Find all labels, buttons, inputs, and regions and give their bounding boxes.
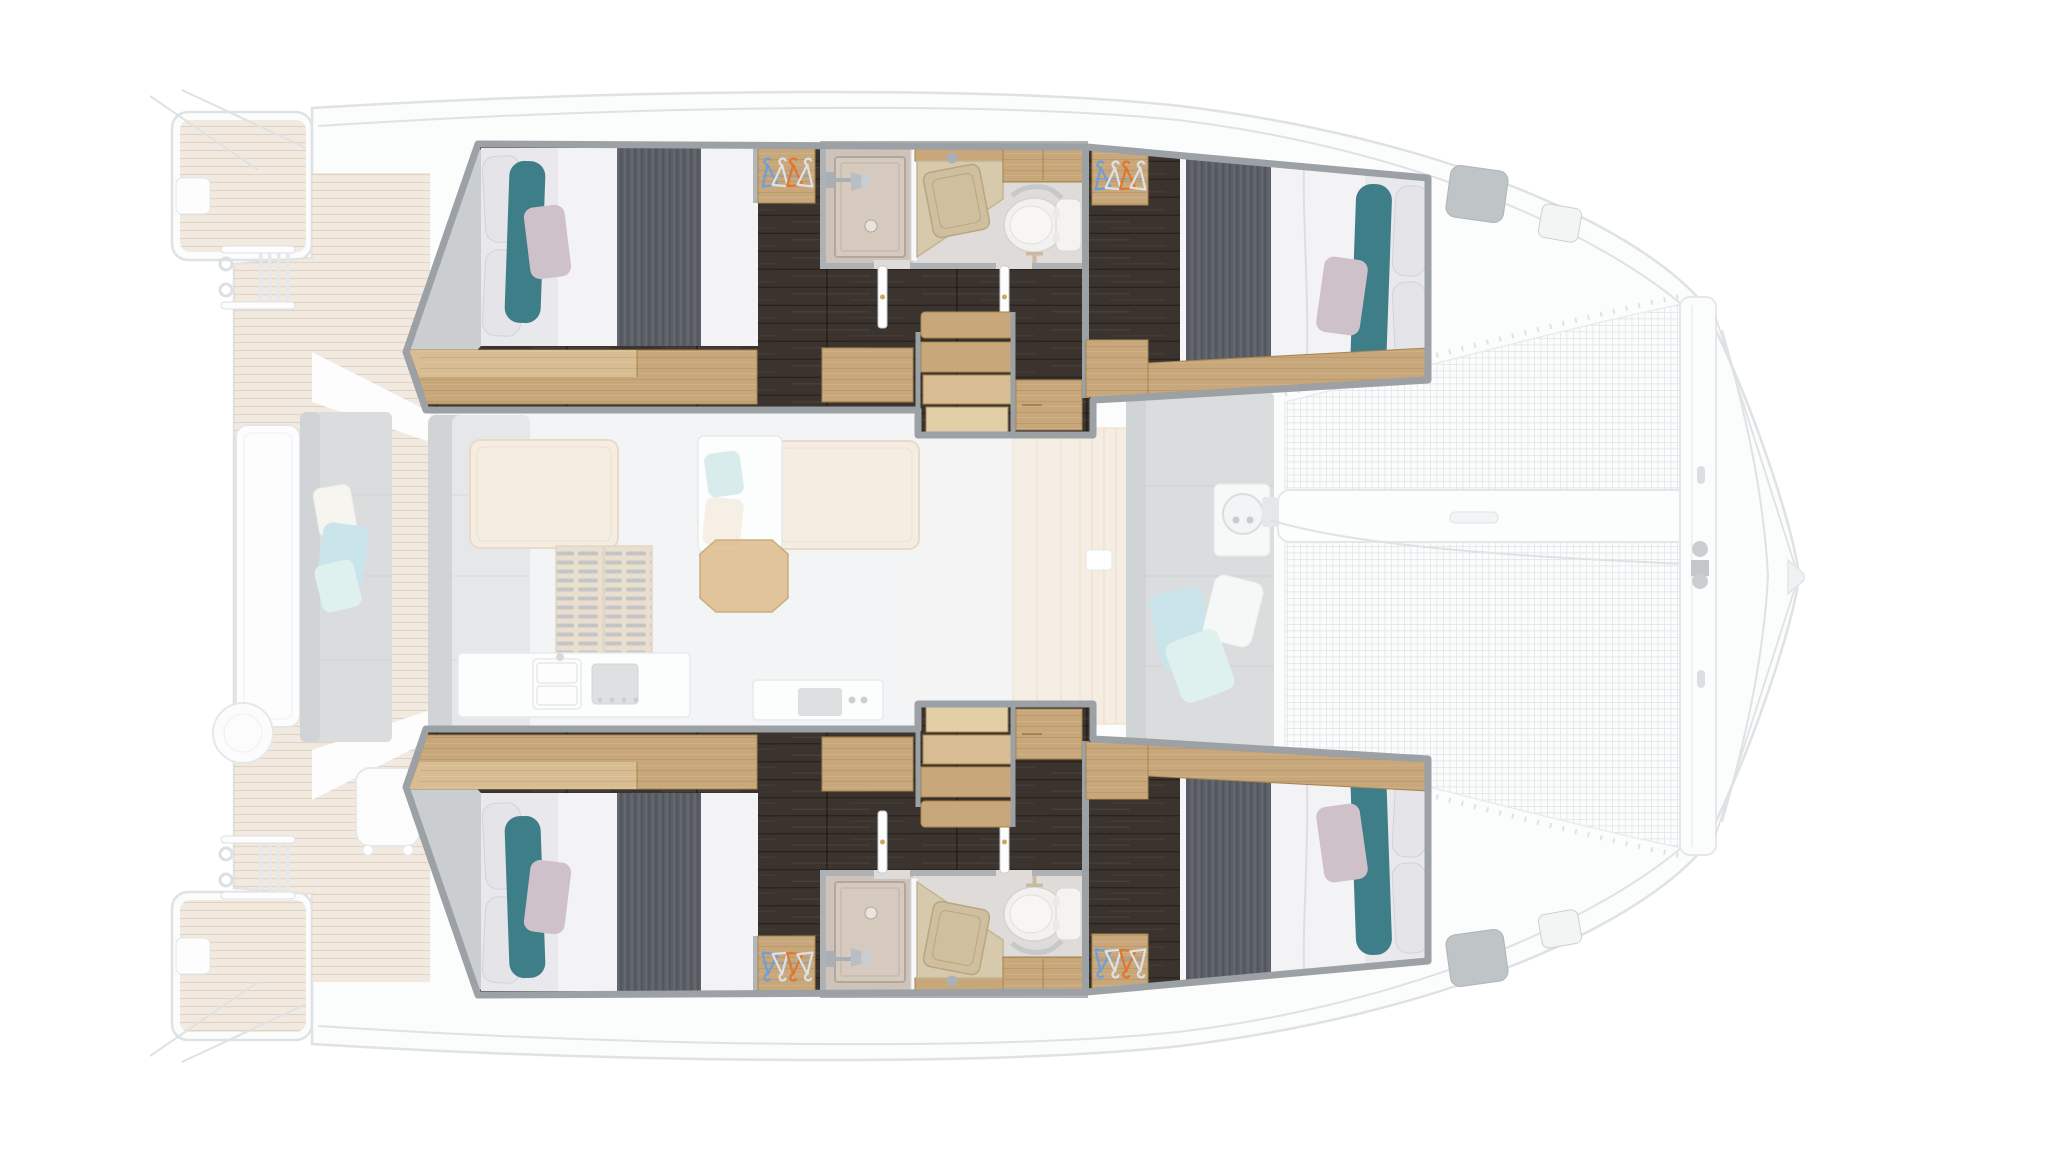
forward-crossbeam xyxy=(1680,297,1716,855)
beam-slot xyxy=(1450,512,1498,523)
galley-stove-unit xyxy=(753,680,883,720)
forward-bench xyxy=(1126,392,1274,760)
bow-fitting xyxy=(1692,573,1708,589)
catamaran-floorplan: Catamaran 4-cabin interior layout plan —… xyxy=(0,0,2048,1152)
cockpit-bench xyxy=(300,412,392,742)
hull-bottom xyxy=(406,704,1430,995)
anchor-locker-lid xyxy=(1080,428,1128,724)
windlass-drum xyxy=(1223,494,1263,534)
swim-platform-top xyxy=(172,112,312,260)
swim-platform-bottom xyxy=(172,892,312,1040)
deck-fitting xyxy=(1086,550,1112,570)
stove-top xyxy=(798,688,842,716)
cushion-aqua xyxy=(703,450,745,499)
saloon-table xyxy=(470,440,618,548)
cockpit-stool xyxy=(213,703,273,763)
hull-top xyxy=(406,144,1430,435)
center-table xyxy=(700,540,788,612)
faucet-icon xyxy=(556,653,564,661)
anchor-windlass xyxy=(1214,484,1278,556)
deck-hatch xyxy=(1445,928,1510,988)
floorplan-page: Catamaran 4-cabin interior layout plan —… xyxy=(0,0,2048,1152)
platform-locker xyxy=(176,178,210,214)
floor-grate xyxy=(556,546,652,656)
galley-sink-unit xyxy=(458,653,690,717)
saloon-daybed xyxy=(698,436,782,552)
platform-locker xyxy=(176,938,210,974)
deck-hatch xyxy=(1537,909,1582,949)
cockpit-table xyxy=(236,425,300,727)
deck-hatch xyxy=(1445,164,1510,224)
bow-fitting xyxy=(1692,541,1708,557)
saloon-table-2 xyxy=(773,441,919,549)
deck-hatch xyxy=(1537,203,1582,243)
